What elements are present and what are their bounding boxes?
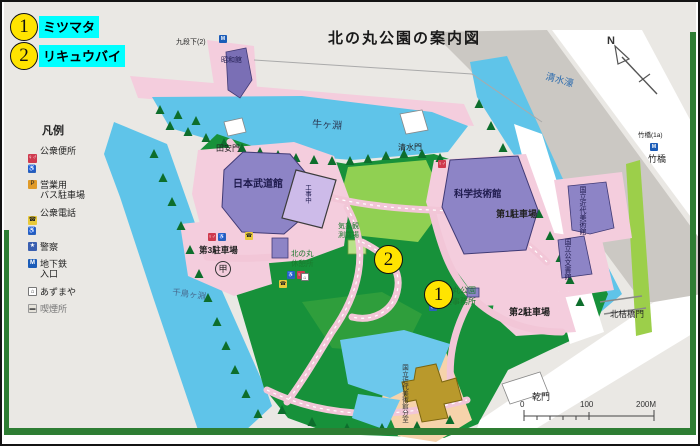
legend-item-label: 営業用 バス駐車場 [40,180,85,201]
map-marker-1: 1 [424,280,453,309]
scale-tick-200: 200M [636,400,656,409]
legend-item-azumaya: ⌂ あずまや [28,287,128,297]
azumaya-icon-map: ⌂ [301,273,309,281]
legend-title: 凡例 [42,122,128,138]
phone-icon-map: ☎ [279,280,287,288]
subway-icon-takebashi: M [650,143,658,151]
label-parking1: 第1駐車場 [496,209,537,219]
label-shimizumon: 清水門 [398,143,422,152]
legend-item-label: 喫煙所 [40,304,67,314]
label-kitahanebashimon: 北桔橋門 [610,310,644,320]
phone-icon: ☎ [28,216,37,225]
wheelchair-icon-map: ♿ [218,233,226,241]
map-screenshot-frame: 1 ミツマタ 2 リキュウバイ 北の丸公園の案内図 凡例 ♀♂♿ 公衆便所 P … [0,0,700,446]
toilet-icon-map: ♀♂ [438,160,446,168]
scale-tick-100: 100 [580,400,593,409]
legend-item-label: 公衆便所 [40,146,76,156]
label-ushigafuchi: 牛ヶ淵 [312,119,343,133]
wheelchair-icon: ♿ [28,227,36,235]
bus-parking-icon: P [28,180,37,189]
callout-marker-2: 2 [10,42,38,70]
label-budokan: 日本武道館 [233,179,283,191]
map-scan-edge-left [4,230,9,435]
police-icon: ★ [28,242,37,251]
label-kudanshita: 九段下(2) [176,39,206,47]
label-inuimon: 乾門 [532,392,550,402]
subway-icon-kudanshita: M [219,35,227,43]
legend-item-label: あずまや [40,287,76,297]
label-momat: 国立近代美術館 [578,186,586,238]
callout-label-rikyubai: リキュウバイ [39,45,125,67]
map-scan-edge-bottom [4,428,696,435]
marker-number: 2 [384,249,394,271]
map-title: 北の丸公園の案内図 [328,30,481,47]
label-rest-house: 北の丸 休憩所 [291,249,314,269]
wheelchair-icon: ♿ [28,165,36,173]
legend-panel: 凡例 ♀♂♿ 公衆便所 P 営業用 バス駐車場 ☎♿ 公衆電話 ★ 警察 M 地… [28,122,128,321]
phone-icon-map: ☎ [245,232,253,240]
momat-building [568,182,614,234]
legend-item-smoking: ▬ 喫煙所 [28,304,128,314]
legend-item-bus-parking: P 営業用 バス駐車場 [28,180,128,201]
map-scan-edge-right [690,32,696,435]
parking3-symbol: 甲 [215,261,231,277]
legend-item-label: 公衆電話 [40,208,76,218]
callout-label-mitsumata: ミツマタ [39,16,99,38]
label-tayasumon: 田安門 [216,144,240,153]
callout-number: 1 [19,16,29,38]
azumaya-icon: ⌂ [28,287,37,296]
callout-number: 2 [19,45,29,67]
label-takebashi: 竹橋 [648,154,666,164]
legend-item-phone: ☎♿ 公衆電話 [28,208,128,235]
legend-item-toilet: ♀♂♿ 公衆便所 [28,146,128,173]
legend-item-label: 警察 [40,242,58,252]
label-parking3: 第3駐車場 [199,246,238,256]
legend-item-subway: M 地下鉄 入口 [28,259,128,280]
toilet-icon: ♀♂ [28,154,37,163]
rest-house-building [272,238,288,258]
label-parking2: 第2駐車場 [509,307,550,317]
label-science-museum: 科学技術館 [454,190,502,201]
scale-tick-0: 0 [520,400,524,409]
marker-number: 1 [434,284,444,306]
label-showakan: 昭和館 [221,57,242,65]
legend-item-label: 地下鉄 入口 [40,259,67,280]
map-marker-2: 2 [374,245,403,274]
label-archives: 国立公文書館 [563,238,571,284]
wheelchair-icon-map: ♿ [287,271,295,279]
toilet-icon-map: ♀♂ [208,233,216,241]
compass-north-label: N [607,35,615,48]
label-weather-station: 気象観 測露場 [338,222,359,240]
legend-item-police: ★ 警察 [28,242,128,252]
label-craft-annex: 国立近代美術館分室 [400,364,407,426]
callout-marker-1: 1 [10,13,38,41]
label-construction: 工事中 [303,184,310,210]
smoking-icon: ▬ [28,304,37,313]
label-takebashi-exit: 竹橋(1a) [638,132,663,139]
subway-icon: M [28,259,37,268]
